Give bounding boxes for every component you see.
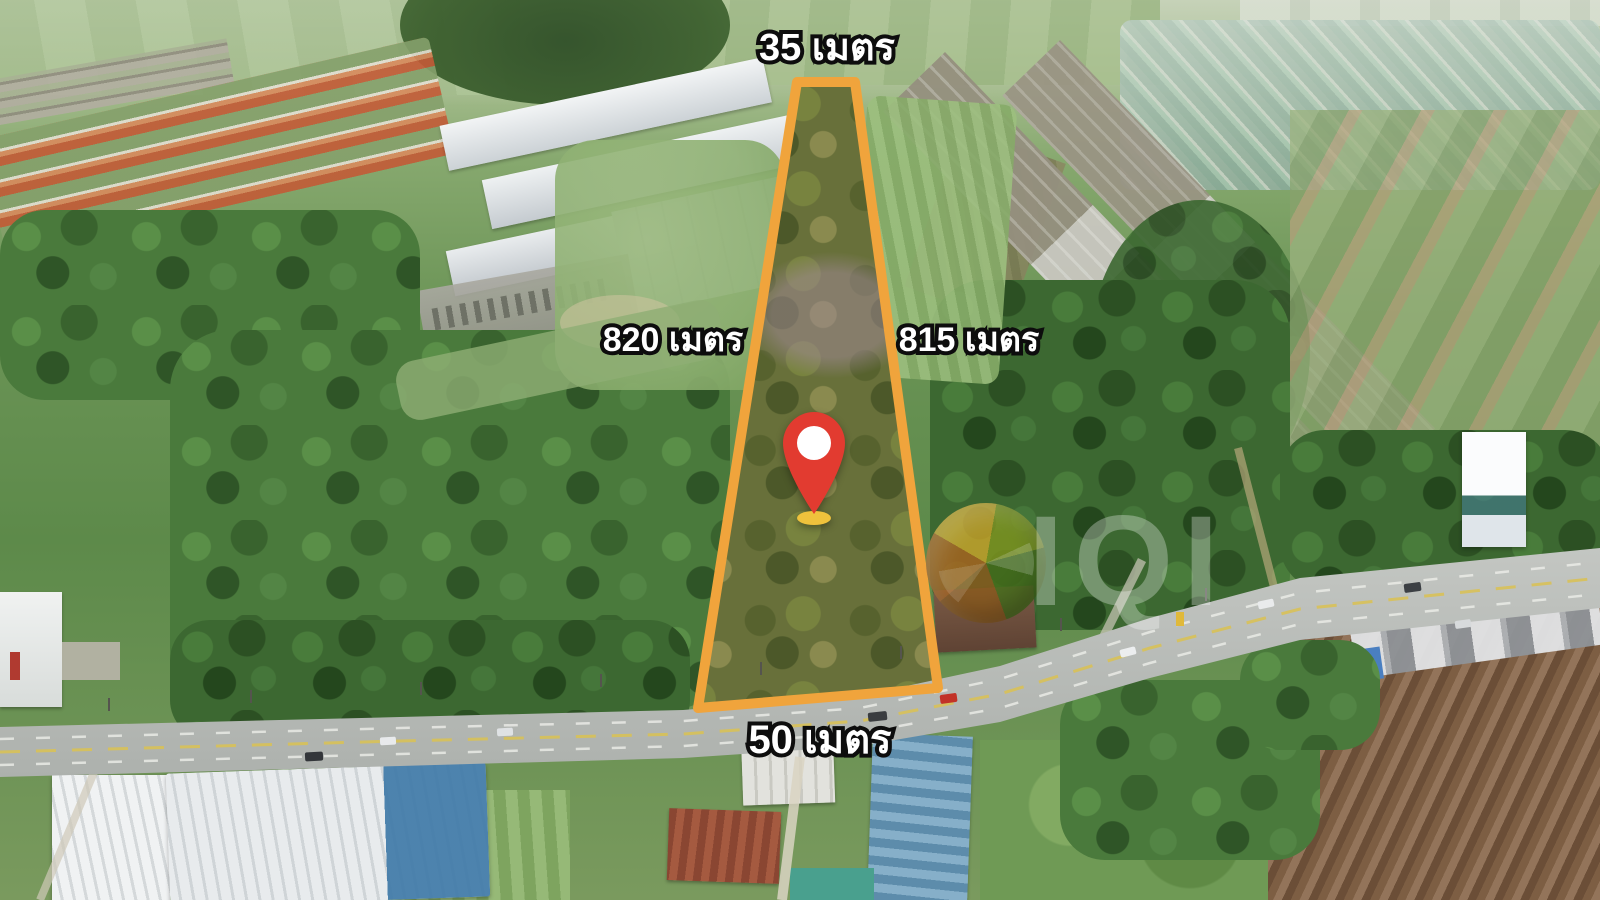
label-text: 820 เมตร <box>603 321 744 359</box>
label-text: 35 เมตร <box>759 27 895 69</box>
label-text: 50 เมตร <box>748 718 891 762</box>
dimension-label-right: 815 เมตร 815 เมตร <box>849 322 1089 359</box>
dimension-label-bottom: 50 เมตร 50 เมตร <box>700 718 940 762</box>
dimension-label-top: 35 เมตร 35 เมตร <box>717 28 937 70</box>
location-pin <box>779 408 849 528</box>
label-text: 815 เมตร <box>899 321 1040 359</box>
plot-boundary-outline <box>698 82 938 708</box>
aerial-photo-stage: IQI 35 เมตร 35 เมตร 820 เมตร 820 เมตร 81… <box>0 0 1600 900</box>
watermark-letters: IQI <box>1028 488 1229 635</box>
pin-inner-dot <box>797 426 831 460</box>
dimension-label-left: 820 เมตร 820 เมตร <box>553 322 793 359</box>
